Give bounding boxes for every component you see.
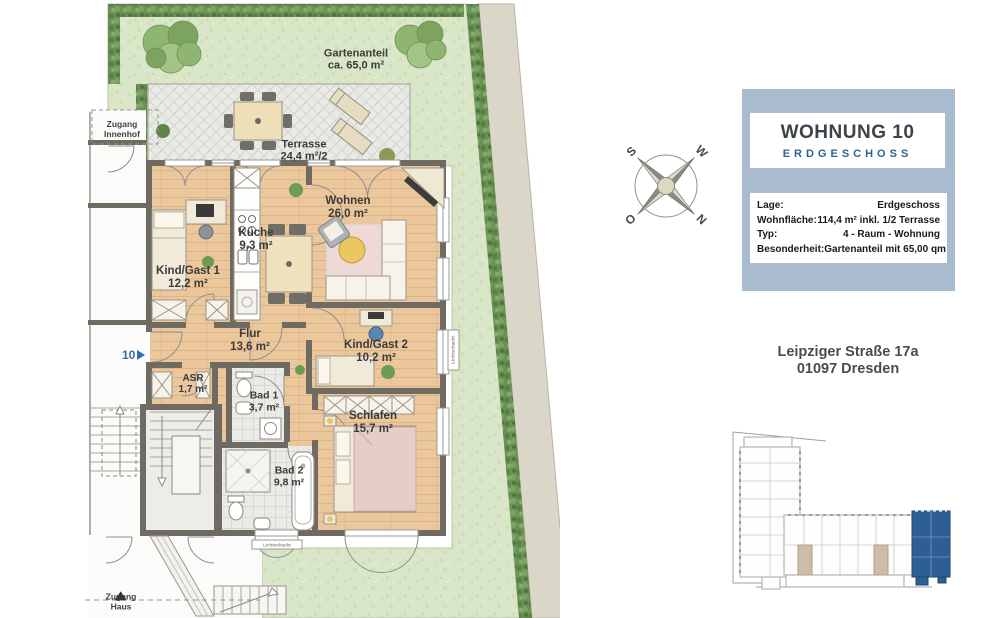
tree-left: [143, 21, 201, 73]
room-label-bad2: Bad 29,8 m²: [274, 465, 304, 489]
floorplan-page: Gartenanteilca. 65,0 m² Terrasse24,4 m²/…: [0, 0, 984, 618]
room-label-schlafen: Schlafen15,7 m²: [349, 410, 397, 436]
detail-label: Typ:: [757, 228, 777, 243]
detail-row-typ: Typ: 4 - Raum - Wohnung: [757, 228, 940, 243]
compass-north: N: [694, 211, 710, 227]
stairwell-block-2: [874, 545, 888, 575]
light-shaft-label-right: Lichtschacht: [451, 336, 456, 364]
detail-label: Wohnfläche:: [757, 214, 817, 229]
address-city: 01097 Dresden: [740, 361, 956, 378]
apartment-info-panel: WOHNUNG 10 ERDGESCHOSS Lage: Erdgeschoss…: [742, 89, 955, 291]
entrance-arrow-icon: [137, 350, 145, 360]
room-label-kind2: Kind/Gast 210,2 m²: [344, 339, 408, 365]
detail-value: Gartenanteil mit 65,00 qm: [824, 243, 946, 258]
access-innenhof-label: Zugang Innenhof: [104, 120, 140, 140]
detail-label: Besonderheit:: [757, 243, 824, 258]
property-address: Leipziger Straße 17a 01097 Dresden: [740, 344, 956, 377]
detail-label: Lage:: [757, 199, 784, 214]
detail-value: Erdgeschoss: [877, 199, 940, 214]
room-label-wohnen: Wohnen26,0 m²: [325, 195, 370, 221]
unit-number-marker: 10: [122, 348, 145, 362]
apartment-details-table: Lage: Erdgeschoss Wohnfläche: 114,4 m² i…: [750, 193, 947, 263]
detail-value: 114,4 m² inkl. 1/2 Terrasse: [817, 214, 940, 229]
building-overview-map: [726, 415, 966, 600]
apartment-title: WOHNUNG 10: [781, 122, 915, 144]
compass-rose: S W O N: [619, 138, 715, 234]
highlighted-unit-10: [912, 511, 950, 585]
stairwell-block-1: [798, 545, 812, 575]
detail-row-besonderheit: Besonderheit: Gartenanteil mit 65,00 qm: [757, 243, 940, 258]
floor-plan-drawing: [0, 0, 560, 618]
room-label-bad1: Bad 13,7 m²: [249, 390, 279, 414]
detail-row-wohnflaeche: Wohnfläche: 114,4 m² inkl. 1/2 Terrasse: [757, 214, 940, 229]
room-label-terrasse: Terrasse24,4 m²/2: [280, 139, 327, 164]
light-shaft-label-bottom: Lichtschacht: [263, 543, 291, 548]
room-label-kueche: Küche9,3 m²: [238, 227, 273, 253]
garden-label: Gartenanteilca. 65,0 m²: [324, 48, 388, 73]
room-label-kind1: Kind/Gast 112,2 m²: [156, 265, 220, 291]
apartment-title-box: WOHNUNG 10 ERDGESCHOSS: [750, 113, 945, 168]
compass-west: W: [693, 142, 711, 160]
room-label-asr: ASR1,7 m²: [179, 373, 208, 395]
detail-value: 4 - Raum - Wohnung: [843, 228, 940, 243]
compass-east: O: [622, 211, 639, 228]
building-outline: [740, 437, 912, 589]
compass-south: S: [624, 144, 640, 160]
access-haus-label: Zugang Haus: [106, 582, 137, 611]
apartment-subtitle: ERDGESCHOSS: [783, 148, 913, 160]
room-label-flur: Flur13,6 m²: [230, 328, 270, 354]
detail-row-lage: Lage: Erdgeschoss: [757, 199, 940, 214]
address-street: Leipziger Straße 17a: [740, 344, 956, 361]
